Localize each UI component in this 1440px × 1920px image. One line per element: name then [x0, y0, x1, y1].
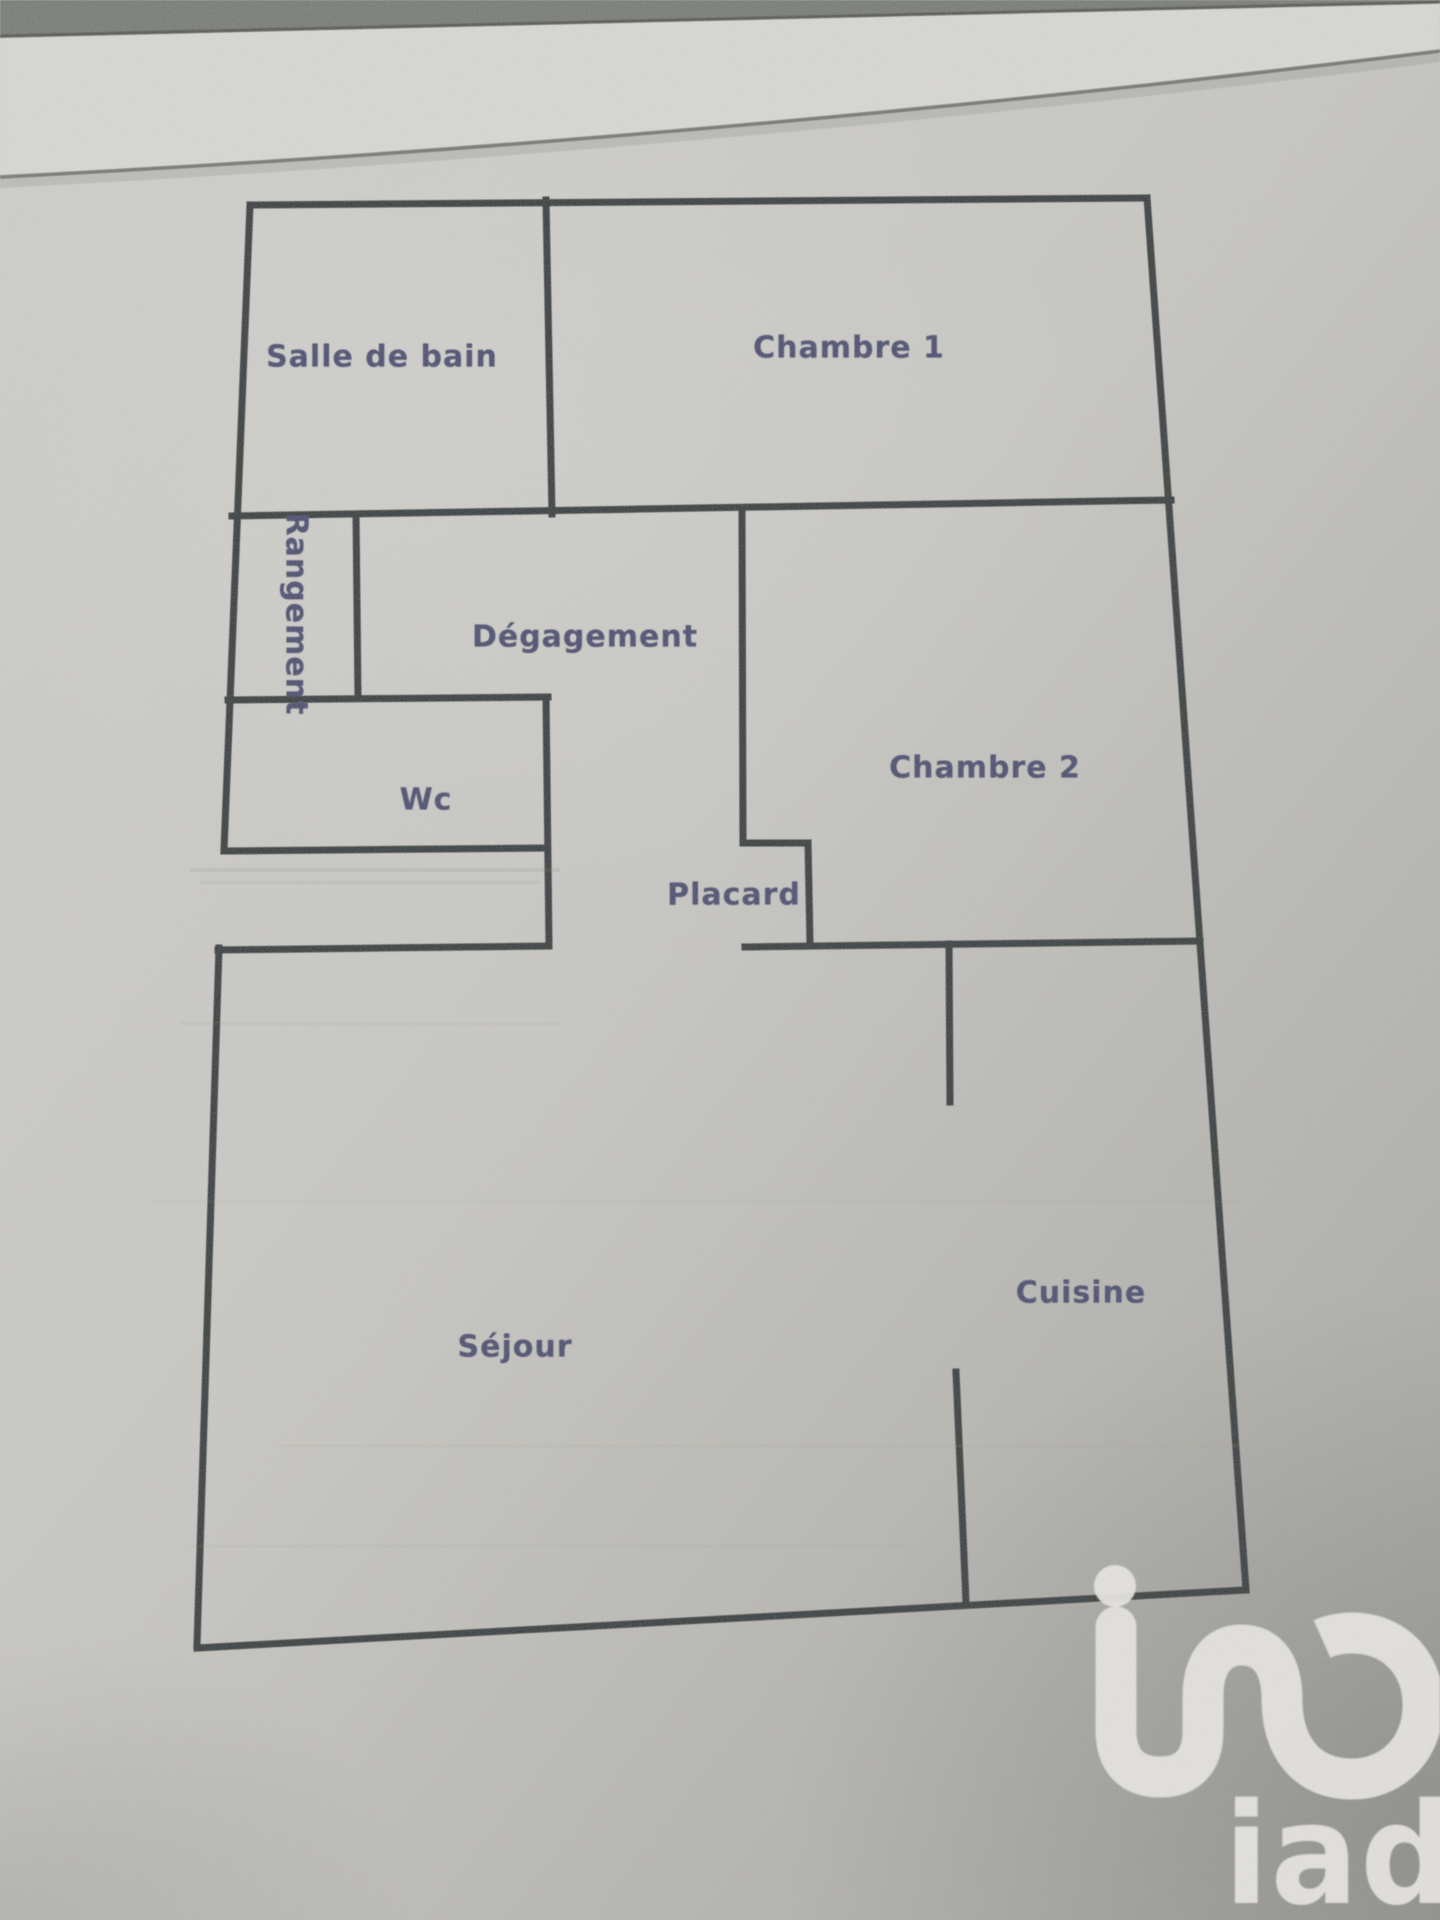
photo-of-floor-plan: Salle de bainChambre 1RangementDégagemen… [0, 0, 1440, 1920]
logo-u-arch-stroke [1116, 1627, 1282, 1777]
photo-content: Salle de bainChambre 1RangementDégagemen… [0, 0, 1440, 1920]
logo-i-dot [1094, 1565, 1136, 1607]
iad-logo-monogram [0, 0, 1440, 1920]
iad-logo-text: iad [1224, 1786, 1440, 1920]
iad-logo: iad [0, 0, 1440, 1920]
logo-ring-stroke [1282, 1633, 1423, 1779]
